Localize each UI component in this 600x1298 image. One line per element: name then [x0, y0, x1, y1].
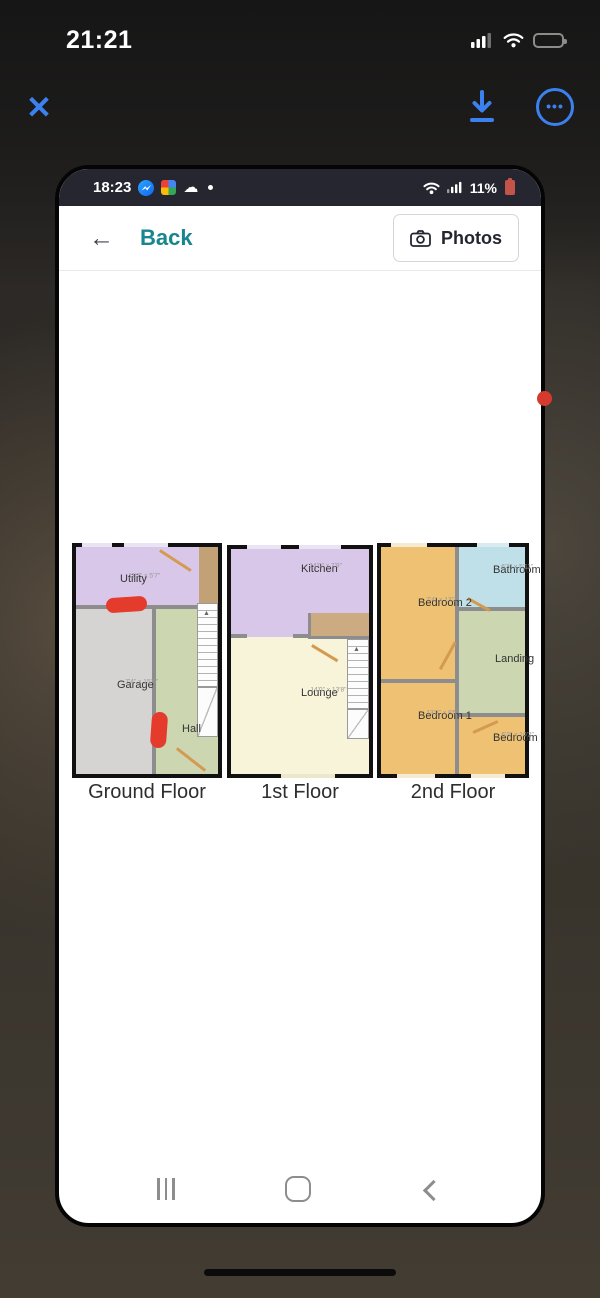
floor-caption-ground: Ground Floor — [72, 781, 222, 804]
back-arrow-icon: ← — [89, 226, 114, 251]
app-notification-icon — [161, 180, 176, 195]
notification-dot-icon — [208, 185, 213, 190]
camera-icon — [410, 230, 431, 247]
android-status-bar: 18:23 ☁ 11% — [59, 169, 541, 206]
floor-caption-first: 1st Floor — [227, 781, 373, 804]
interior-wall — [455, 547, 459, 774]
floor-caption-second: 2nd Floor — [377, 781, 529, 804]
red-annotation — [106, 596, 148, 614]
download-icon — [466, 89, 498, 125]
window — [82, 543, 112, 547]
back-button[interactable]: ← Back — [59, 225, 193, 251]
floor-plan-second: Bedroom 2 7'4" x 13'2" Bathroom 6'3" x 5… — [377, 543, 529, 778]
under-stairs-cupboard — [347, 709, 369, 739]
android-nav-bar — [59, 1171, 541, 1207]
stairs-up-arrow-icon: ▲ — [353, 646, 360, 653]
landing-area — [308, 613, 369, 639]
window — [397, 774, 435, 778]
android-clock: 18:23 — [93, 179, 131, 196]
more-options-button[interactable]: ••• — [536, 88, 574, 126]
window — [124, 543, 168, 547]
close-button[interactable]: ✕ — [26, 92, 52, 123]
wifi-icon — [503, 32, 524, 48]
ios-status-icons — [471, 32, 564, 48]
messenger-notification-icon — [138, 180, 154, 196]
phone-screenshot-photo[interactable]: 18:23 ☁ 11% — [55, 165, 545, 1227]
android-back-button[interactable] — [421, 1178, 443, 1200]
window — [247, 545, 281, 549]
android-signal-icon — [447, 181, 463, 194]
battery-percent-label: 11% — [470, 180, 497, 196]
window — [281, 774, 335, 778]
photos-button[interactable]: Photos — [393, 214, 519, 262]
stairs-up-arrow-icon: ▲ — [203, 610, 210, 617]
app-header: ← Back Photos — [59, 206, 541, 271]
red-annotation — [150, 711, 168, 748]
interior-wall — [381, 679, 455, 683]
weather-cloud-icon: ☁ — [183, 180, 198, 195]
battery-icon — [533, 33, 564, 48]
floor-plan-first: ▲ Kitchen 14'0" x 7'9" Lounge 14'0" x 13… — [227, 545, 373, 778]
back-label: Back — [140, 225, 193, 251]
android-wifi-icon — [423, 181, 440, 195]
photos-label: Photos — [441, 228, 502, 249]
interior-wall — [231, 634, 247, 638]
room-garage — [76, 609, 152, 774]
red-edge-marker — [537, 391, 552, 406]
low-battery-icon — [505, 180, 515, 195]
ios-clock: 21:21 — [66, 26, 132, 55]
entry-area — [199, 547, 218, 603]
window — [391, 543, 427, 547]
room-bedroom3 — [459, 717, 525, 774]
room-bedroom1 — [381, 683, 455, 774]
viewer-toolbar: ✕ ••• — [0, 84, 600, 130]
photo-viewer-screen: 21:21 ✕ — [0, 0, 600, 1298]
window — [477, 543, 509, 547]
cellular-signal-icon — [471, 33, 494, 48]
download-button[interactable] — [466, 89, 498, 125]
ios-home-indicator[interactable] — [204, 1269, 396, 1276]
floor-plan-ground: ▲ Utility 11'7" x 5'7" Garage 7'4" x 15'… — [72, 543, 222, 778]
home-button[interactable] — [285, 1176, 311, 1202]
recents-button[interactable] — [157, 1178, 175, 1200]
ios-status-bar: 21:21 — [0, 20, 600, 60]
window — [299, 545, 341, 549]
window — [471, 774, 505, 778]
